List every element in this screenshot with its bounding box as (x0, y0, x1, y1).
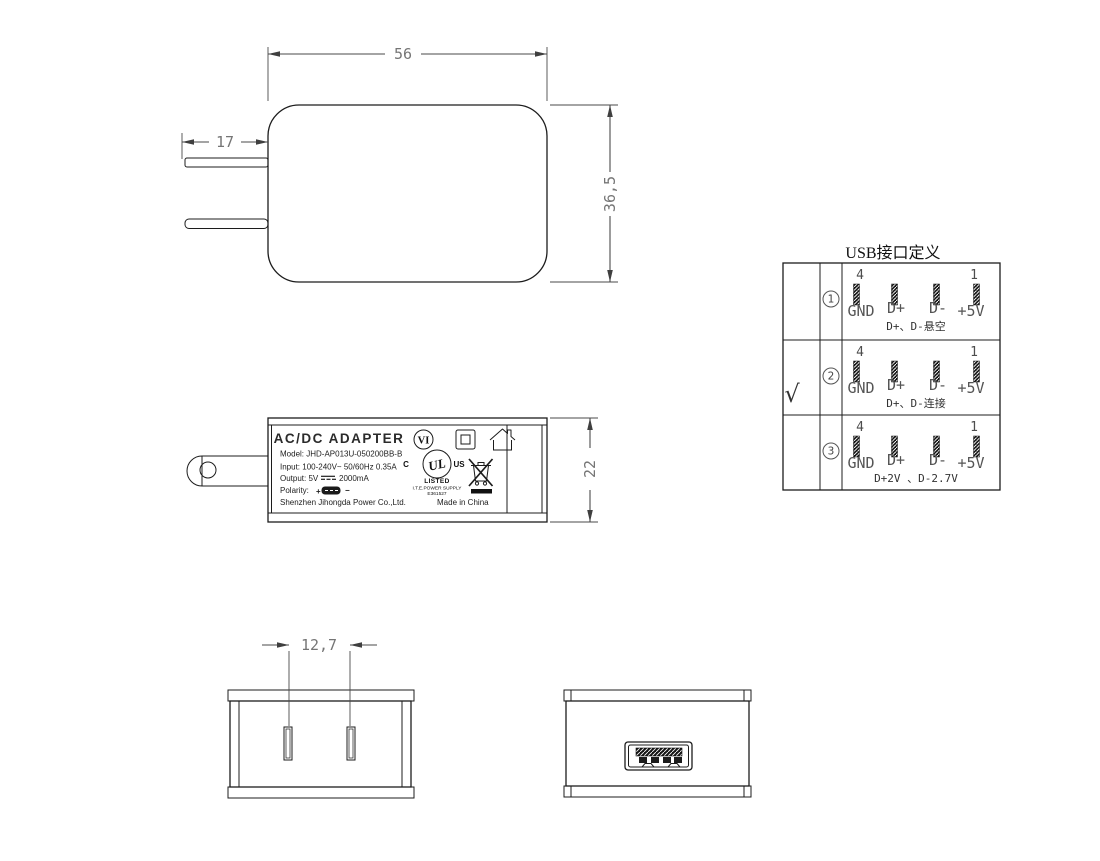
pin-number-1: 1 (970, 345, 978, 360)
usb-tongue (636, 748, 682, 756)
ul-file-number: E361527 (427, 491, 447, 497)
label-polarity: Polarity: (280, 486, 309, 495)
weee-bin-icon (469, 459, 493, 494)
label-text: AC/DC ADAPTER Model: JHD-AP013U-050200BB… (274, 431, 490, 507)
shell-detent (668, 764, 680, 768)
dim-prong-spacing-value: 12,7 (301, 636, 337, 654)
usb-pinout-table: USB接口定义 1 4 1 GND D+ D- +5V D+、D-悬空 √ 2 (783, 244, 1000, 490)
class-ii-inner (461, 435, 470, 444)
usb-contact-pin (639, 757, 647, 763)
drawing-sheet: 56 17 36,5 AC/DC ADAPTER Mo (0, 0, 1100, 861)
pin-label-dminus: D- (929, 299, 947, 317)
row-index: 3 (828, 446, 835, 458)
label-output-prefix: Output: 5V (280, 474, 319, 483)
side-view: AC/DC ADAPTER Model: JHD-AP013U-050200BB… (187, 418, 599, 522)
table-row: 1 4 1 GND D+ D- +5V D+、D-悬空 (823, 268, 985, 333)
usb-contact-pin (663, 757, 671, 763)
label-input: Input: 100-240V~ 50/60Hz 0.35A (280, 463, 397, 472)
ul-c-mark: C (403, 460, 409, 469)
pin-label-5v: +5V (957, 454, 984, 472)
pin-label-dminus: D- (929, 376, 947, 394)
pin-number-4: 4 (856, 268, 864, 283)
front-view-body (268, 105, 547, 282)
front-view-prong-top (185, 158, 268, 167)
label-title: AC/DC ADAPTER (274, 431, 405, 446)
ul-listed-text: LISTED (424, 478, 450, 485)
dim-height-36-5: 36,5 (550, 105, 619, 282)
row-note: D+、D-悬空 (886, 319, 946, 333)
polarity-minus: − (345, 486, 350, 495)
usb-face-view (564, 690, 751, 797)
adapter-technical-drawing: 56 17 36,5 AC/DC ADAPTER Mo (0, 0, 1100, 861)
dim-prong-17: 17 (182, 133, 268, 159)
class-ii-icon (456, 430, 475, 449)
indoor-use-house-icon (490, 429, 515, 450)
dim-prong-value: 17 (216, 133, 234, 151)
usb-contact-pin (674, 757, 682, 763)
dim-width-56: 56 (268, 45, 547, 101)
efficiency-vi-icon: VI (414, 430, 433, 449)
house-roof (490, 429, 515, 440)
label-icons: VI UL C US LISTED I.T.E.POWER SUPPLY E36… (403, 429, 515, 497)
pin-label-gnd: GND (847, 302, 874, 320)
usb-contact-pin (651, 757, 659, 763)
table-row: 3 4 1 GND D+ D- +5V D+2V 、D-2.7V (823, 420, 985, 485)
row-note: D+2V 、D-2.7V (874, 472, 958, 485)
top-strip (228, 690, 414, 701)
dim-prong-spacing-12-7: 12,7 (262, 636, 377, 726)
front-view-prong-bottom (185, 219, 268, 229)
vi-text: VI (418, 436, 430, 447)
prong-slot-right-inner (349, 729, 353, 758)
bottom-strip (564, 786, 751, 797)
body-face (230, 701, 411, 787)
label-model: Model: JHD-AP013U-050200BB-B (280, 450, 402, 459)
prong-slot-left-inner (286, 729, 290, 758)
bottom-strip (228, 787, 414, 798)
shell-detent (642, 764, 654, 768)
ul-us-mark: US (453, 460, 465, 469)
weee-bar (471, 489, 492, 494)
row-check: √ (784, 380, 800, 408)
pin-label-gnd: GND (847, 454, 874, 472)
row-index: 1 (828, 294, 835, 306)
dim-side-height-value: 22 (581, 460, 599, 478)
dim-width-value: 56 (394, 45, 412, 63)
pin-number-4: 4 (856, 345, 864, 360)
top-strip (564, 690, 751, 701)
ul-listed-icon: UL C US LISTED I.T.E.POWER SUPPLY E36152… (403, 450, 465, 497)
row-index: 2 (828, 371, 835, 383)
table-row: √ 2 4 1 GND D+ D- +5V D+、D-连接 (784, 345, 984, 410)
pin-number-1: 1 (970, 420, 978, 435)
label-made-in: Made in China (437, 498, 489, 507)
usb-connector-icon (322, 487, 341, 495)
bottom-view: 12,7 (228, 636, 414, 798)
pin-label-5v: +5V (957, 302, 984, 320)
class-ii-outer (456, 430, 475, 449)
pin-label-gnd: GND (847, 379, 874, 397)
ul-logo-text: UL (427, 455, 447, 473)
pin-number-1: 1 (970, 268, 978, 283)
pin-label-dminus: D- (929, 451, 947, 469)
prong-slot-left (284, 727, 292, 760)
pin-label-5v: +5V (957, 379, 984, 397)
polarity-plus: + (316, 487, 321, 496)
dc-symbol-icon (321, 476, 336, 479)
bin-wheel (483, 482, 486, 485)
ul-type-text: I.T.E.POWER SUPPLY (413, 486, 463, 492)
front-view: 56 17 36,5 (182, 45, 619, 282)
dim-height-value: 36,5 (601, 176, 619, 212)
prong-slot-right (347, 727, 355, 760)
row-note: D+、D-连接 (886, 397, 946, 410)
label-output-suffix: 2000mA (339, 474, 369, 483)
usb-table-title: USB接口定义 (845, 244, 940, 262)
body-face (566, 701, 749, 786)
pin-label-dplus: D+ (887, 451, 905, 469)
label-manufacturer: Shenzhen Jihongda Power Co.,Ltd. (280, 498, 406, 507)
side-view-blade (187, 456, 268, 486)
usb-port (625, 742, 692, 770)
bin-wheel (475, 482, 478, 485)
pin-number-4: 4 (856, 420, 864, 435)
dim-side-height-22: 22 (550, 418, 599, 522)
pin-label-dplus: D+ (887, 299, 905, 317)
pin-label-dplus: D+ (887, 376, 905, 394)
house-body (494, 440, 512, 450)
